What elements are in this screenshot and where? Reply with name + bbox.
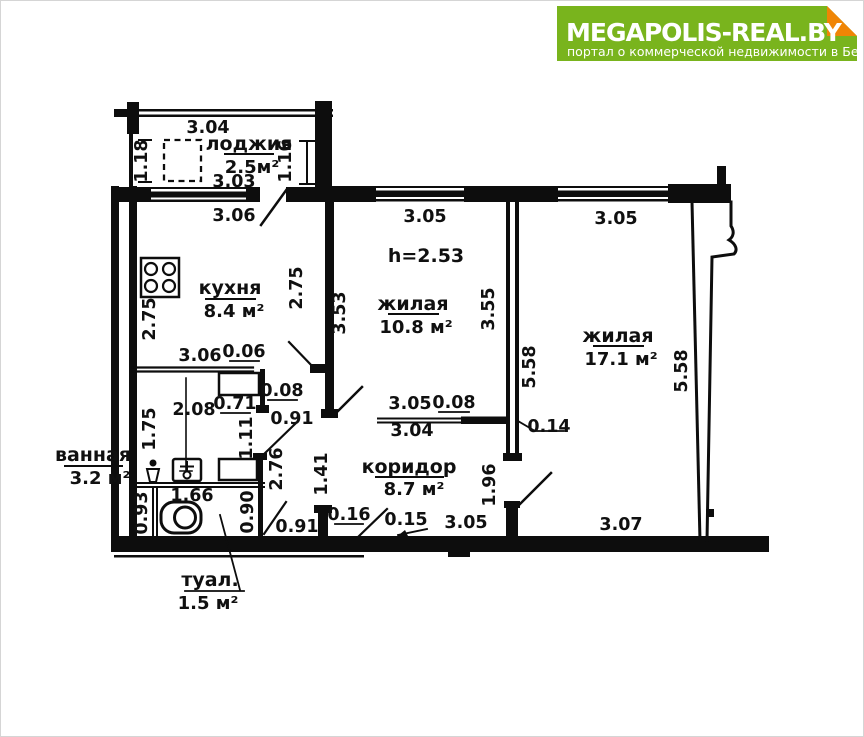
area-label-bathroom: 3.2 м² xyxy=(70,468,131,489)
dim-balcony-left: 1.18 xyxy=(132,139,152,182)
dim-living2-right: 5.58 xyxy=(672,349,692,392)
dim-bath-mid: 1.11 xyxy=(237,416,257,459)
dim-toilet-right: 0.90 xyxy=(238,490,258,533)
dim-living2-left: 5.58 xyxy=(520,345,540,388)
room-label-kitchen: кухня xyxy=(199,277,262,299)
living2-door-swing xyxy=(520,473,551,504)
dim-bath-width: 2.08 xyxy=(172,400,215,420)
dim-kitchen-bottom-offset: 0.06 xyxy=(222,342,265,362)
area-label-corridor: 8.7 м² xyxy=(384,479,445,500)
dim-balcony-bottom: 3.03 xyxy=(212,172,255,192)
pedestal-sink-icon xyxy=(147,460,159,483)
dim-living1-bottom-offset: 0.08 xyxy=(432,393,475,413)
kitchen-door-swing xyxy=(289,342,313,367)
room-label-toilet: туал. xyxy=(181,569,238,591)
dim-corridor-door-right: 1.96 xyxy=(480,463,500,506)
dim-bath-right: 2.76 xyxy=(267,447,287,490)
dim-living1-bottom2: 3.04 xyxy=(390,421,433,441)
dim-living1-top: 3.05 xyxy=(403,207,446,227)
dim-toilet-width: 1.66 xyxy=(170,486,213,506)
area-label-toilet: 1.5 м² xyxy=(178,593,239,614)
dim-living2-wall-offset: 0.14 xyxy=(527,417,570,437)
dim-kitchen-window: 3.06 xyxy=(212,206,255,226)
dim-living1-left: 3.53 xyxy=(330,291,350,334)
dim-corridor-stub: 0.16 xyxy=(327,505,370,525)
washbasin-icon xyxy=(173,459,201,481)
dim-toilet-left: 0.93 xyxy=(132,491,152,534)
dim-balcony-right: 1.16 xyxy=(276,139,296,182)
brand-logo-text: MEGAPOLIS-REAL.BY xyxy=(566,18,843,47)
room-label-corridor: коридор xyxy=(362,456,457,478)
stove-icon xyxy=(141,258,179,297)
area-label-living1: 10.8 м² xyxy=(379,317,452,338)
site-banner: MEGAPOLIS-REAL.BY портал о коммерческой … xyxy=(557,6,864,61)
washer-icon xyxy=(219,459,257,480)
ceiling-height-label: h=2.53 xyxy=(388,245,464,267)
dim-corridor-left: 1.41 xyxy=(312,452,332,495)
area-label-living2: 17.1 м² xyxy=(584,349,657,370)
room-label-living1: жилая xyxy=(377,293,448,315)
dim-corridor-bottom: 3.05 xyxy=(444,513,487,533)
room-label-bathroom: ванная xyxy=(55,444,131,466)
closet-071 xyxy=(219,373,259,395)
dim-kitchen-bottom: 3.06 xyxy=(178,346,221,366)
toilet-icon xyxy=(161,502,201,533)
area-label-kitchen: 8.4 м² xyxy=(204,301,265,322)
dim-living1-right: 3.55 xyxy=(479,287,499,330)
window-living1 xyxy=(376,186,464,202)
dim-living2-bottom: 3.07 xyxy=(599,515,642,535)
balcony-dashed-zone xyxy=(164,140,201,181)
dim-hall-cabinet: 0.71 xyxy=(213,394,256,414)
dim-hall-offset: 0.08 xyxy=(260,381,303,401)
balcony-door-swing xyxy=(261,189,287,225)
floor-plan-page: MEGAPOLIS-REAL.BY портал о коммерческой … xyxy=(0,0,864,737)
window-living2 xyxy=(558,186,668,202)
living1-door-swing xyxy=(334,387,362,415)
dim-bath-left: 1.75 xyxy=(140,407,160,450)
dim-toilet-door: 0.91 xyxy=(275,517,318,537)
dim-living2-top: 3.05 xyxy=(594,209,637,229)
room-label-living2: жилая xyxy=(582,325,653,347)
dim-kitchen-left: 2.75 xyxy=(140,297,160,340)
brand-tagline: портал о коммерческой недвижимости в Бел… xyxy=(567,44,864,59)
dim-hall-door: 0.91 xyxy=(270,409,313,429)
dim-kitchen-right: 2.75 xyxy=(287,266,307,309)
dim-living1-bottom: 3.05 xyxy=(388,394,431,414)
dim-corridor-bottom-offset: 0.15 xyxy=(384,510,427,530)
